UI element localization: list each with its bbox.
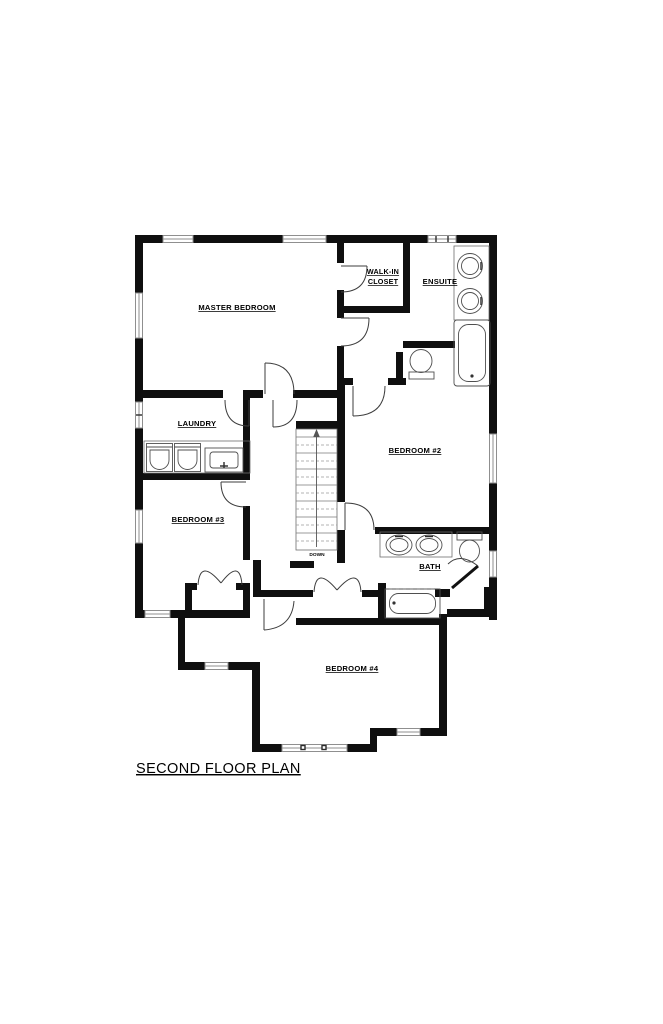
window	[282, 745, 347, 752]
label-bath: BATH	[419, 562, 441, 571]
washer	[147, 444, 173, 472]
bath-toilet	[457, 532, 482, 562]
label-walk-in-closet-line1: WALK-IN	[367, 267, 399, 276]
window	[490, 434, 497, 483]
bath-vanity	[380, 532, 452, 557]
staircase: DOWN	[296, 429, 337, 558]
window	[163, 236, 193, 243]
door-swing	[353, 386, 385, 416]
stairs-direction-label: DOWN	[309, 552, 325, 558]
window	[205, 663, 228, 670]
door-swing	[264, 599, 294, 630]
window	[283, 236, 326, 243]
ensuite-toilet	[409, 350, 434, 380]
window	[136, 402, 143, 428]
label-master-bedroom: MASTER BEDROOM	[198, 303, 275, 312]
label-laundry: LAUNDRY	[178, 419, 217, 428]
ensuite-fixtures	[409, 246, 490, 386]
laundry-fixtures	[144, 441, 250, 473]
door-swing	[341, 266, 367, 292]
walls	[135, 235, 497, 752]
label-bedroom-3: BEDROOM #3	[172, 515, 225, 524]
label-bedroom-2: BEDROOM #2	[389, 446, 442, 455]
door-swing	[345, 503, 374, 530]
stairs-direction-arrow	[313, 429, 320, 547]
ensuite-bathtub	[454, 320, 490, 386]
door-swing	[273, 400, 297, 427]
double-door-swing	[198, 571, 242, 585]
label-ensuite: ENSUITE	[423, 277, 458, 286]
door-swing	[265, 363, 294, 394]
door-swing	[221, 482, 246, 507]
door-swing	[448, 558, 478, 588]
dryer	[175, 444, 201, 472]
window	[136, 293, 143, 338]
floor-plan-drawing: DOWN	[0, 0, 663, 1024]
floor-plan-sheet: DOWN	[0, 0, 663, 1024]
window	[490, 551, 497, 577]
label-walk-in-closet-line2: CLOSET	[368, 277, 399, 286]
door-swing	[341, 318, 369, 346]
page-title: SECOND FLOOR PLAN	[136, 761, 301, 777]
bath-tub	[385, 589, 440, 618]
laundry-sink	[205, 448, 243, 472]
ensuite-vanity	[454, 246, 489, 320]
window	[428, 236, 456, 243]
window	[145, 611, 170, 618]
window	[397, 729, 420, 736]
label-bedroom-4: BEDROOM #4	[326, 664, 379, 673]
double-door-swing	[314, 578, 361, 592]
window	[136, 510, 143, 543]
